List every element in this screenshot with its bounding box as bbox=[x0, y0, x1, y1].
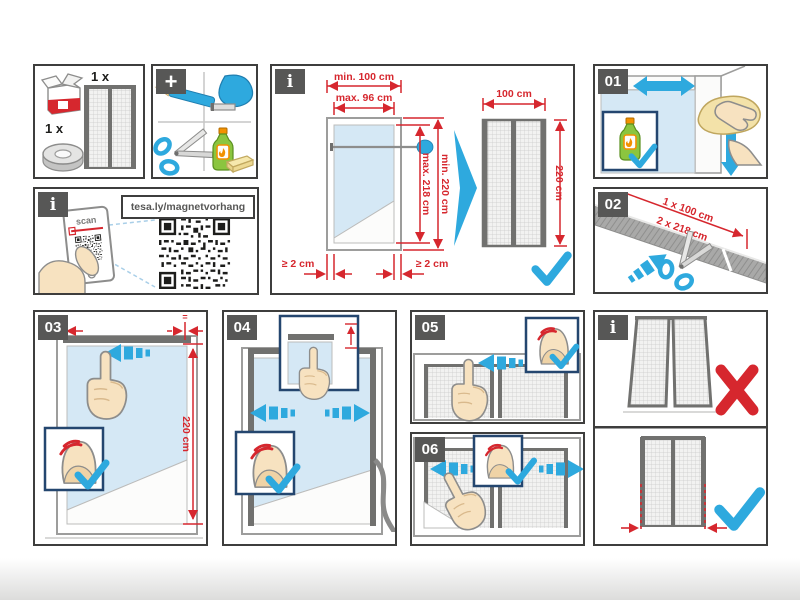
tape-quantity-label: 1 x bbox=[45, 121, 63, 136]
margin-right-label: ≥ 2 cm bbox=[416, 258, 449, 270]
panel-step-04: 04 bbox=[222, 310, 397, 546]
panel-step-03: 03 = = 220 c bbox=[33, 310, 208, 546]
equal-mark-right: = bbox=[182, 312, 187, 322]
hanging-illustration bbox=[595, 312, 766, 544]
panel-step-06: 06 bbox=[410, 432, 585, 546]
scissors-icon bbox=[153, 124, 216, 177]
arrow-up-right-icon bbox=[625, 247, 672, 288]
cleaner-inset bbox=[603, 112, 657, 170]
panel-tools-needed: + bbox=[151, 64, 258, 179]
press-firmly-inset bbox=[526, 318, 578, 372]
product-url: tesa.ly/magnetvorhang bbox=[121, 195, 255, 219]
margin-left-label: ≥ 2 cm bbox=[282, 258, 315, 270]
check-icon bbox=[535, 255, 567, 281]
door-max-height-label: max. 218 cm bbox=[420, 153, 432, 215]
curtain-height-label: 220 cm bbox=[553, 165, 565, 201]
panel-step-05: 05 bbox=[410, 310, 585, 424]
curtain-illustration bbox=[483, 120, 545, 246]
tape-strip-top bbox=[63, 336, 191, 343]
info-icon: i bbox=[598, 315, 628, 340]
press-firmly-inset bbox=[45, 428, 106, 490]
mesh-curtain-icon bbox=[85, 86, 135, 168]
panel-step-01: 01 bbox=[593, 64, 768, 179]
package-box-icon bbox=[42, 74, 82, 114]
door-max-width-label: max. 96 cm bbox=[336, 92, 393, 104]
curtain-width-label: 100 cm bbox=[496, 88, 532, 100]
background-floor-shadow bbox=[0, 558, 800, 600]
door-frame bbox=[327, 118, 401, 250]
plus-icon: + bbox=[156, 69, 186, 94]
press-firmly-inset bbox=[236, 432, 297, 494]
instruction-sheet: 1 x 1 x + i tesa.ly/magnetvorhang scan bbox=[0, 0, 800, 600]
check-icon bbox=[719, 492, 760, 525]
step-number-badge: 04 bbox=[227, 315, 257, 340]
door-min-width-label: min. 100 cm bbox=[334, 71, 394, 83]
qr-code bbox=[157, 216, 233, 292]
panel-hanging-check: i bbox=[593, 310, 768, 546]
info-icon: i bbox=[38, 192, 68, 217]
divider bbox=[595, 426, 766, 429]
step-number-badge: 03 bbox=[38, 315, 68, 340]
step-number-badge: 05 bbox=[415, 315, 445, 340]
panel-step-02: 02 1 x 100 cm 2 x 218 cm bbox=[593, 187, 768, 294]
info-icon: i bbox=[275, 69, 305, 94]
panel-sizing-info: i bbox=[270, 64, 575, 295]
panel-kit-contents: 1 x 1 x bbox=[33, 64, 145, 179]
scan-label: scan bbox=[75, 215, 96, 227]
step-number-badge: 06 bbox=[415, 437, 445, 462]
step-number-badge: 01 bbox=[598, 69, 628, 94]
curtain-quantity-label: 1 x bbox=[91, 69, 109, 84]
step04-illustration bbox=[224, 312, 395, 544]
door-min-height-label: min. 220 cm bbox=[439, 154, 451, 214]
big-arrow-right-icon bbox=[454, 130, 477, 246]
panel-qr-info: i tesa.ly/magnetvorhang scan bbox=[33, 187, 259, 295]
curtain-wrong bbox=[623, 316, 717, 412]
adhesive-tape-roll-icon bbox=[43, 144, 83, 171]
tape-measure-icon bbox=[211, 75, 253, 111]
step03-illustration: = = 220 cm bbox=[35, 312, 206, 544]
sizing-illustration: min. 100 cm max. 96 cm max. 218 cm min. … bbox=[272, 66, 573, 293]
frame-height-label: 220 cm bbox=[180, 416, 192, 452]
curtain-correct bbox=[641, 436, 705, 526]
step-number-badge: 02 bbox=[598, 192, 628, 217]
tape-strip-right bbox=[370, 354, 376, 526]
cross-icon bbox=[721, 370, 753, 410]
